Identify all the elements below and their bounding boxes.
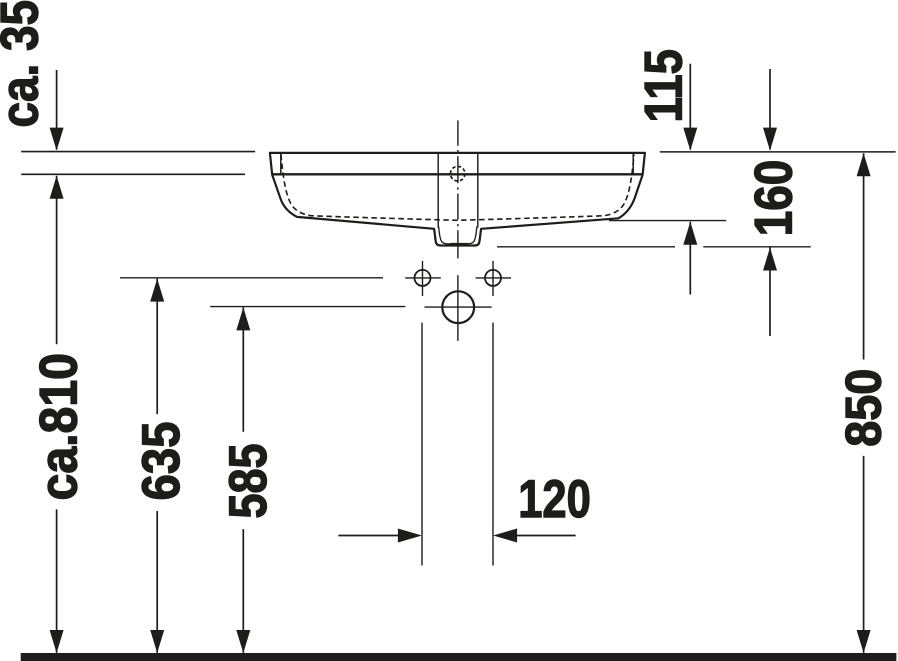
- svg-text:ca. 35: ca. 35: [0, 0, 49, 128]
- svg-text:160: 160: [745, 160, 804, 237]
- svg-text:585: 585: [219, 444, 278, 519]
- svg-text:120: 120: [518, 470, 591, 529]
- svg-text:ca.810: ca.810: [30, 353, 89, 501]
- svg-text:115: 115: [634, 49, 693, 123]
- svg-text:635: 635: [132, 422, 191, 501]
- svg-text:850: 850: [835, 369, 891, 447]
